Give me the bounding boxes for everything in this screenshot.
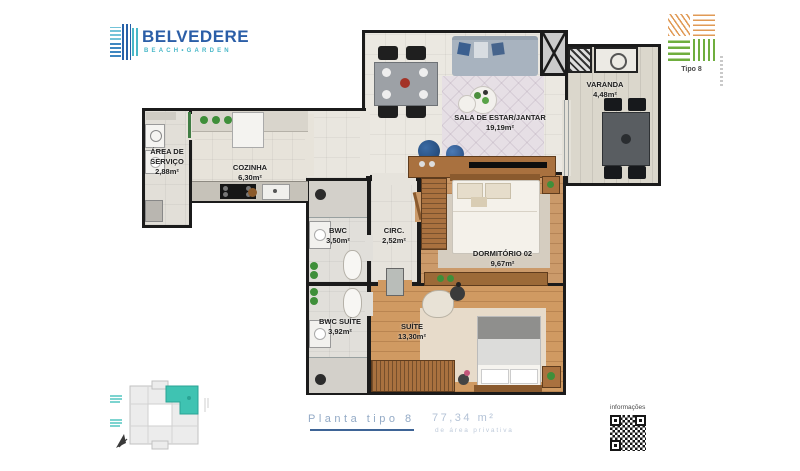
plant	[447, 275, 454, 282]
toilet	[343, 288, 362, 318]
laundry-shelf	[146, 112, 176, 120]
cutting-board	[248, 188, 257, 197]
plate	[382, 90, 391, 99]
utility-cabinet	[145, 200, 163, 222]
plant	[224, 116, 232, 124]
plate	[419, 68, 428, 77]
label-cozinha: COZINHA 6,30m²	[215, 163, 285, 183]
coffee-table	[458, 95, 476, 113]
grille-hatch	[568, 47, 592, 73]
plant	[310, 297, 318, 305]
room-name: DORMITÓRIO 02	[440, 249, 565, 259]
badge-wavy-lines-icon	[693, 14, 715, 36]
floor-plan-page: BELVEDERE BEACH•GARDEN Tipo 8	[0, 0, 800, 471]
room-area: 3,92m²	[312, 327, 368, 337]
shaft	[540, 30, 568, 76]
sink-bowl	[610, 53, 627, 70]
room-name: ÁREA DE SERVIÇO	[144, 147, 190, 167]
plate	[419, 90, 428, 99]
qr-finder-icon	[635, 415, 646, 426]
showerhead-icon	[315, 374, 326, 385]
suite-bed	[477, 316, 541, 390]
decor	[429, 161, 435, 167]
plant	[212, 116, 220, 124]
qr-code	[608, 413, 648, 453]
plan-caption-subtitle: de área privativa	[435, 427, 514, 434]
centerpiece	[621, 134, 631, 144]
room-area: 2,88m²	[144, 167, 190, 177]
dresser	[424, 272, 548, 286]
kitchen-sink	[262, 184, 290, 200]
door-leaf	[386, 268, 404, 296]
caption-underline	[310, 429, 414, 431]
pillow	[481, 369, 509, 384]
pillow	[457, 42, 471, 56]
burner	[223, 186, 228, 191]
wardrobe-rack	[421, 178, 447, 250]
nightstand	[542, 176, 560, 194]
double-bed	[452, 180, 540, 254]
room-name: BWC SUÍTE	[312, 317, 368, 327]
blanket	[478, 339, 540, 365]
badge-horizontal-lines-icon	[668, 39, 690, 61]
plant	[310, 271, 318, 279]
label-suite: SUÍTE 13,30m²	[382, 322, 442, 342]
belvedere-logo-icon	[110, 24, 138, 60]
room-name: CIRC.	[372, 226, 416, 236]
label-bwc: BWC 3,50m²	[316, 226, 360, 246]
room-area: 9,67m²	[440, 259, 565, 269]
blanket-foot	[478, 317, 540, 339]
unit-type-badge-icon	[668, 14, 715, 61]
faucet	[273, 189, 277, 193]
plant	[482, 97, 489, 104]
badge-diagonal-lines-icon	[668, 14, 690, 36]
duvet-fold	[453, 211, 537, 212]
logo-lines-icon	[110, 43, 121, 57]
headboard	[474, 385, 542, 392]
room-area: 19,19m²	[430, 123, 570, 133]
room-name: COZINHA	[215, 163, 285, 173]
washer	[145, 124, 165, 148]
decor-bowl	[483, 90, 488, 95]
qr-finder-icon	[610, 415, 621, 426]
unit-type-label: Tipo 8	[668, 66, 715, 73]
balcony-table	[602, 112, 650, 166]
pillow-small	[471, 197, 487, 207]
kitchen-counter-bottom	[192, 181, 308, 201]
plant	[547, 181, 554, 188]
door-leaf-green	[188, 112, 191, 138]
key-plan-legend-text	[110, 396, 122, 426]
plant	[310, 262, 318, 270]
logo-lines-icon	[132, 28, 138, 56]
qr-finder-icon	[610, 440, 621, 451]
pillow	[491, 42, 505, 56]
room-area: 3,50m²	[316, 236, 360, 246]
fine-print-vertical	[720, 56, 723, 86]
dining-table	[374, 62, 438, 106]
nightstand	[542, 366, 561, 388]
balcony-chair	[628, 166, 646, 179]
plant	[310, 288, 318, 296]
balcony-chair	[604, 98, 622, 111]
label-varanda: VARANDA 4,48m²	[575, 80, 635, 100]
plant	[437, 275, 444, 282]
room-area: 13,30m²	[382, 332, 442, 342]
logo-lines-icon	[122, 24, 131, 60]
plan-caption-title: Planta tipo 8	[308, 413, 415, 425]
badge-vertical-lines-icon	[693, 39, 715, 61]
decor	[419, 161, 425, 167]
room-area: 2,52m²	[372, 236, 416, 246]
room-name: SALA DE ESTAR/JANTAR	[430, 113, 570, 123]
plant	[474, 92, 481, 99]
room-hall	[306, 108, 366, 178]
side-table-round	[450, 286, 465, 301]
shower	[309, 181, 367, 218]
brand-tagline: BEACH•GARDEN	[144, 48, 232, 54]
dining-chair	[378, 46, 398, 60]
throw-blanket	[474, 42, 488, 58]
fridge	[232, 112, 264, 148]
showerhead-icon	[315, 189, 326, 200]
pillow	[510, 369, 538, 384]
door-bwc-suite	[365, 292, 373, 316]
lamp	[456, 282, 461, 287]
qr-label: informações	[610, 404, 645, 411]
washer-door	[150, 130, 162, 142]
toilet	[343, 250, 362, 280]
plate	[382, 68, 391, 77]
label-circ: CIRC. 2,52m²	[372, 226, 416, 246]
sofa	[452, 36, 538, 76]
room-name: SUÍTE	[382, 322, 442, 332]
flower-decor	[464, 370, 470, 376]
room-area: 4,48m²	[575, 90, 635, 100]
room-area: 6,30m²	[215, 173, 285, 183]
room-name: VARANDA	[575, 80, 635, 90]
pillow	[485, 183, 511, 199]
burner	[223, 192, 228, 197]
dining-chair	[406, 104, 426, 118]
dining-chair	[406, 46, 426, 60]
label-sala: SALA DE ESTAR/JANTAR 19,19m²	[430, 113, 570, 133]
label-dormitorio-02: DORMITÓRIO 02 9,67m²	[440, 249, 565, 269]
plan-caption-area: 77,34 m²	[432, 412, 495, 424]
glass-door-line	[564, 100, 565, 176]
key-plan-fine-print	[205, 398, 208, 412]
logo-lines-icon	[110, 27, 121, 40]
plant	[200, 116, 208, 124]
centerpiece-flowers	[400, 78, 410, 88]
room-name: BWC	[316, 226, 360, 236]
brand-name: BELVEDERE	[142, 27, 249, 47]
shower	[309, 357, 367, 393]
glass-door-line	[568, 100, 569, 176]
opening-hall-sala	[360, 112, 370, 176]
key-plan	[108, 380, 212, 458]
wardrobe-rack	[371, 360, 455, 392]
tv	[469, 162, 547, 168]
north-arrow-icon	[116, 434, 127, 448]
balcony-chair	[628, 98, 646, 111]
barbecue-counter	[594, 47, 638, 73]
dining-chair	[378, 104, 398, 118]
label-bwc-suite: BWC SUÍTE 3,92m²	[312, 317, 368, 337]
plant	[547, 372, 555, 380]
label-area-servico: ÁREA DE SERVIÇO 2,88m²	[144, 147, 190, 176]
balcony-chair	[604, 166, 622, 179]
